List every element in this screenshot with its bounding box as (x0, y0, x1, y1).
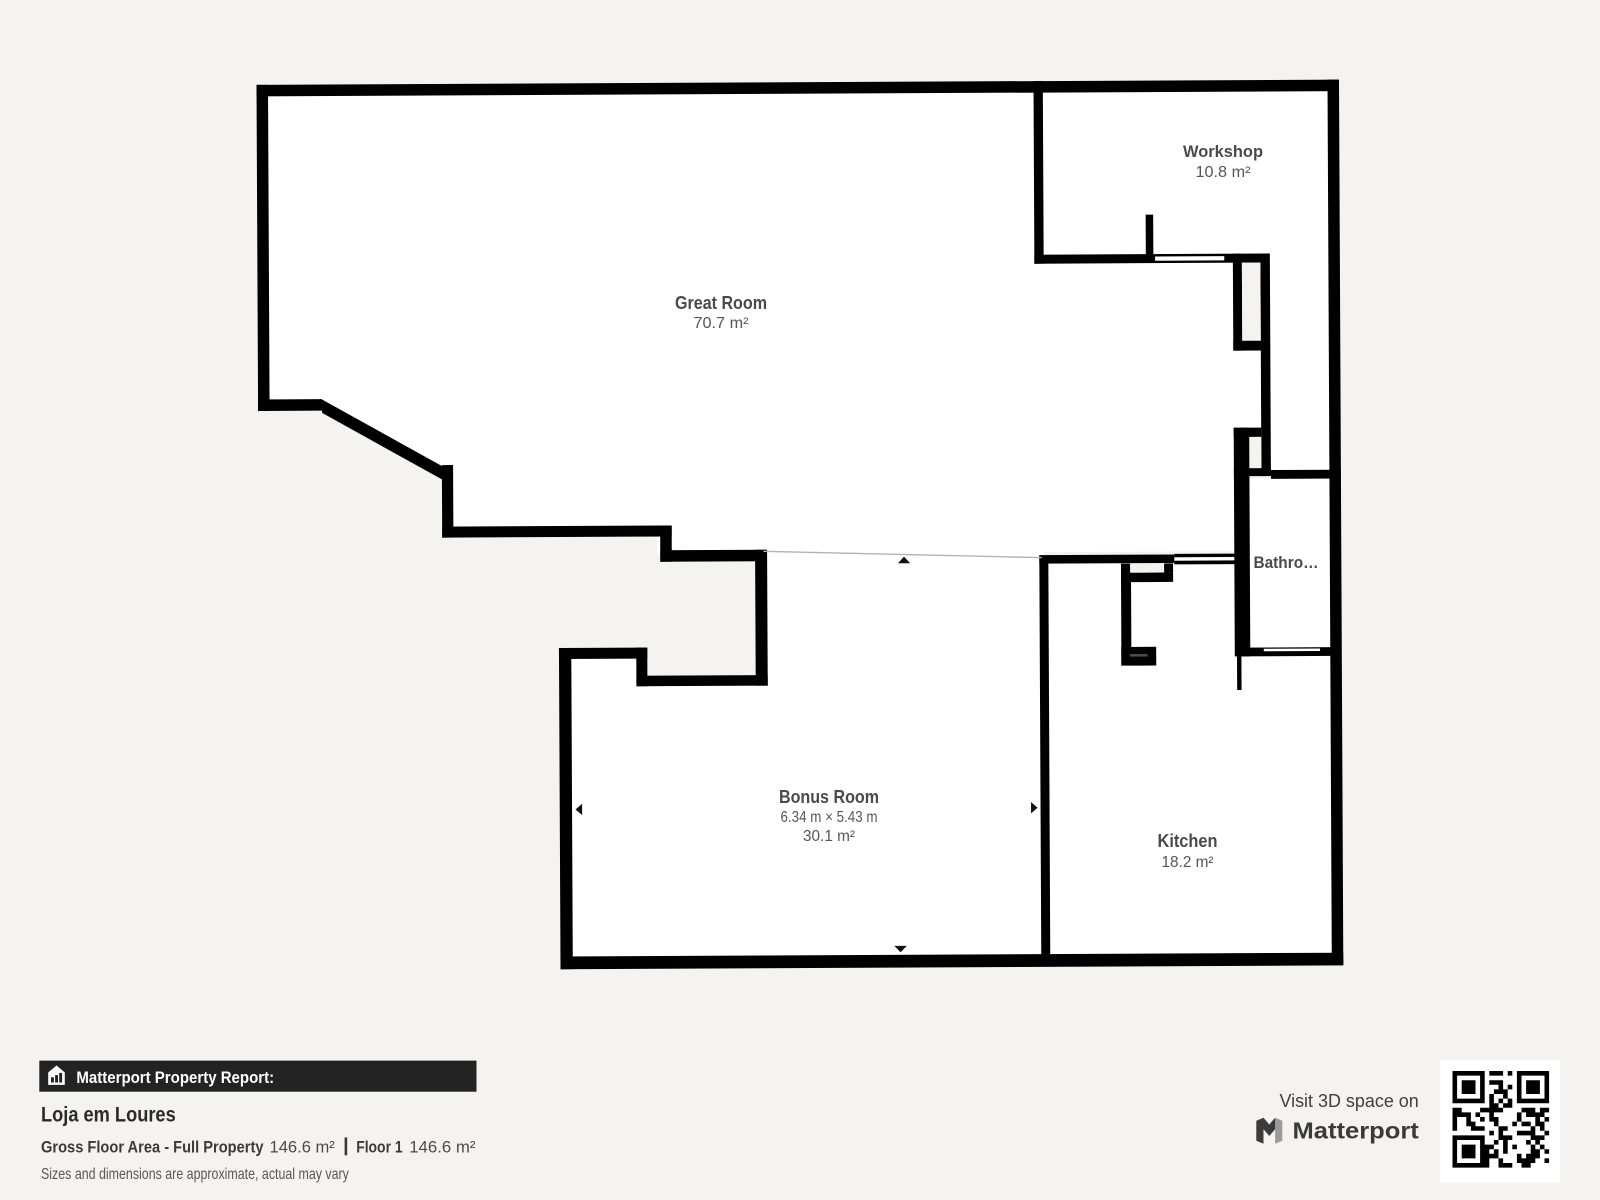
svg-text:Loja em Loures: Loja em Loures (41, 1104, 176, 1127)
svg-text:Sizes and dimensions are appro: Sizes and dimensions are approximate, ac… (41, 1166, 349, 1183)
svg-text:30.1 m²: 30.1 m² (803, 828, 855, 845)
svg-text:Gross Floor Area - Full Proper: Gross Floor Area - Full Property146.6 m² (41, 1138, 335, 1157)
svg-text:18.2 m²: 18.2 m² (1162, 854, 1214, 871)
svg-text:Kitchen: Kitchen (1158, 831, 1218, 851)
svg-text:Workshop: Workshop (1183, 142, 1263, 161)
svg-text:70.7 m²: 70.7 m² (694, 315, 749, 332)
svg-text:Great Room: Great Room (675, 293, 767, 313)
svg-text:10.8 m²: 10.8 m² (1196, 164, 1251, 181)
svg-text:Bonus Room: Bonus Room (779, 787, 879, 807)
svg-text:6.34 m × 5.43 m: 6.34 m × 5.43 m (781, 809, 878, 826)
svg-text:Matterport Property Report:: Matterport Property Report: (76, 1069, 274, 1087)
svg-text:Bathro…: Bathro… (1254, 553, 1319, 572)
svg-text:Matterport: Matterport (1293, 1118, 1420, 1144)
svg-text:Visit 3D space on: Visit 3D space on (1279, 1091, 1418, 1111)
svg-text:Floor 1146.6 m²: Floor 1146.6 m² (356, 1138, 476, 1157)
